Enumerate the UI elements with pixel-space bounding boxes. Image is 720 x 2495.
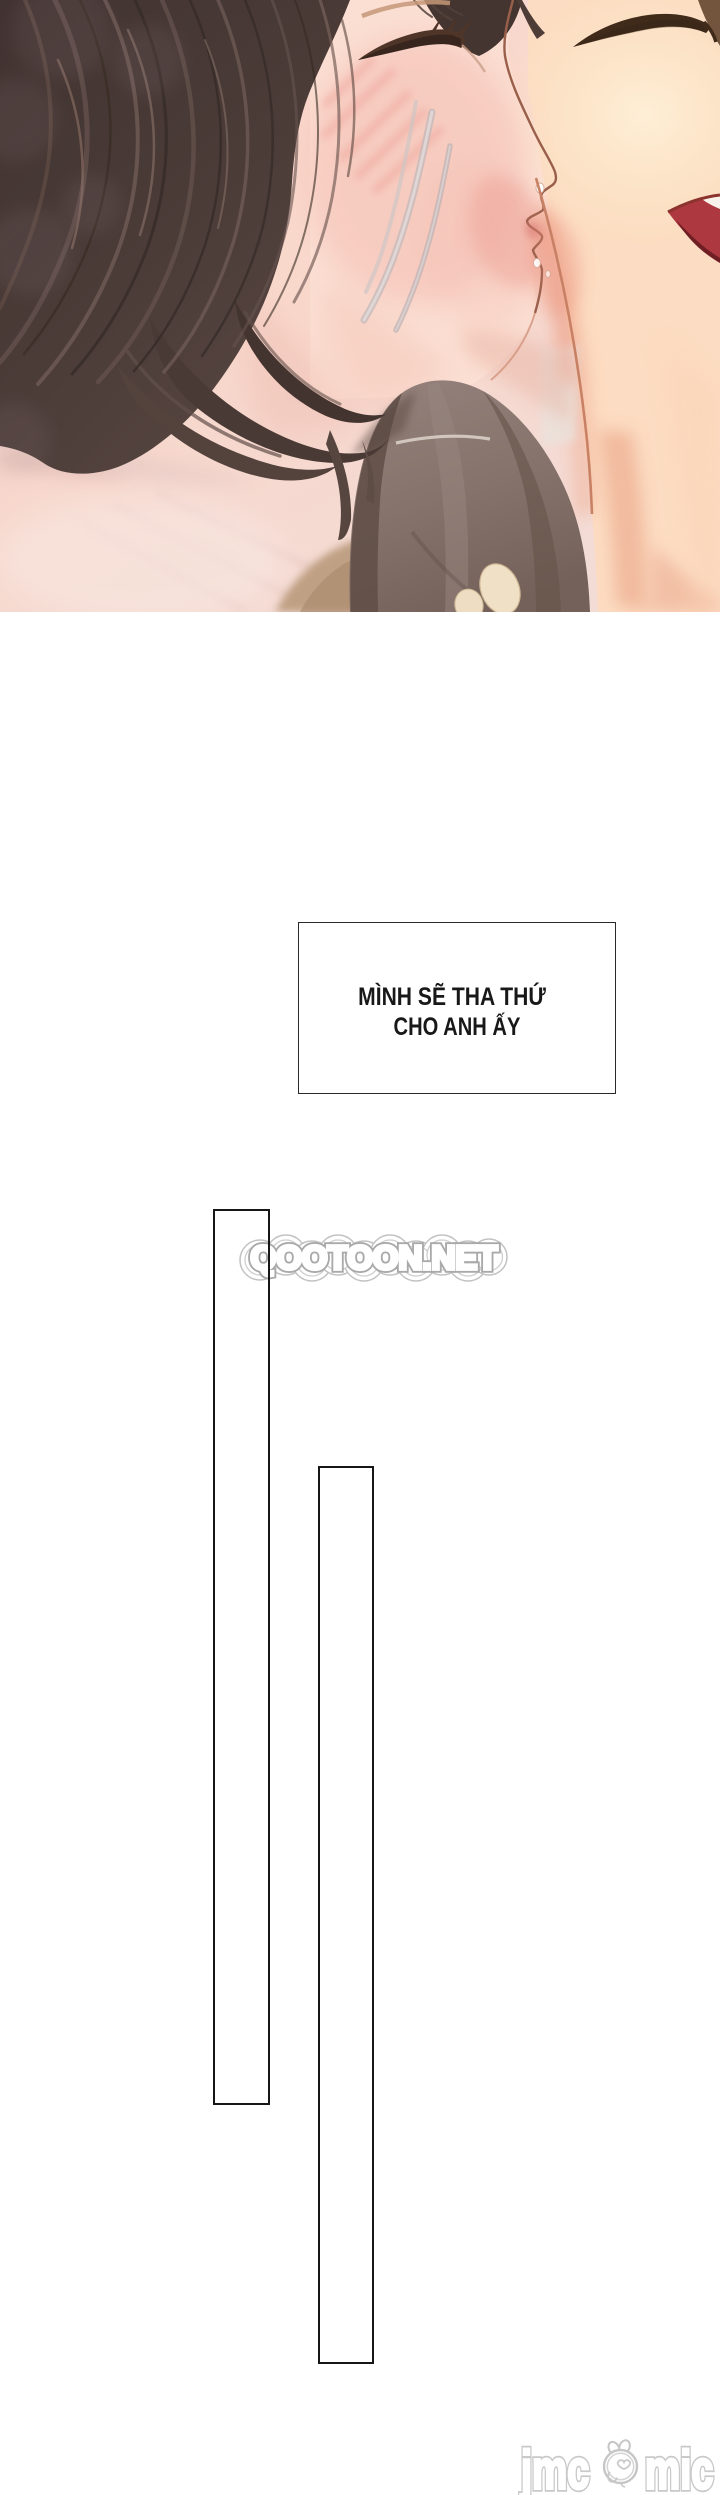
svg-text:QOOTOON.NET: QOOTOON.NET [251,1239,498,1276]
svg-text:mic: mic [645,2440,713,2495]
svg-text:jmc: jmc [520,2440,589,2495]
